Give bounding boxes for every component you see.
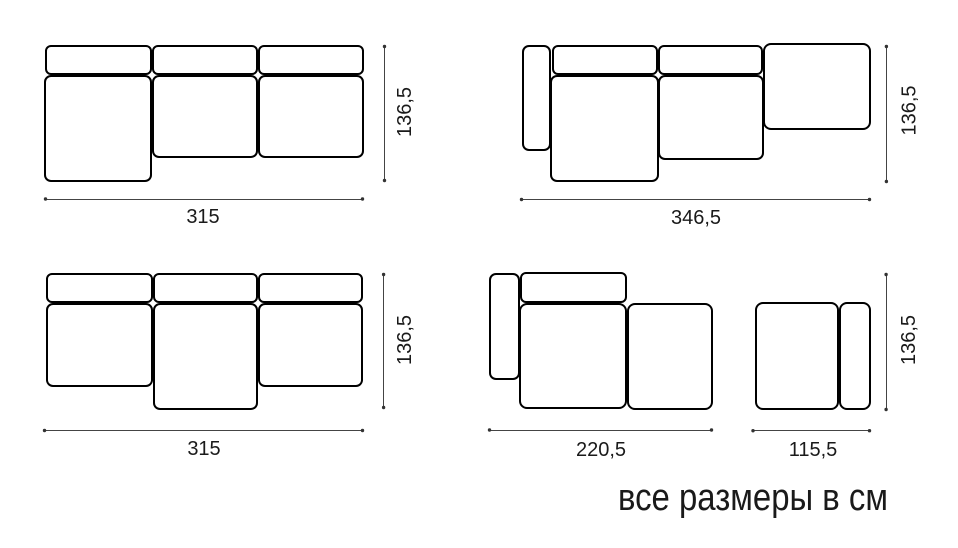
svg-text:115,5: 115,5 [789, 439, 838, 461]
svg-text:346,5: 346,5 [671, 207, 721, 229]
svg-text:136,5: 136,5 [899, 85, 921, 135]
svg-text:315: 315 [187, 438, 220, 460]
svg-text:315: 315 [186, 206, 219, 228]
svg-text:136,5: 136,5 [898, 315, 920, 365]
svg-text:все размеры в см: все размеры в см [618, 477, 888, 519]
svg-text:220,5: 220,5 [576, 439, 626, 461]
svg-text:136,5: 136,5 [394, 315, 416, 365]
svg-text:136,5: 136,5 [394, 87, 416, 137]
